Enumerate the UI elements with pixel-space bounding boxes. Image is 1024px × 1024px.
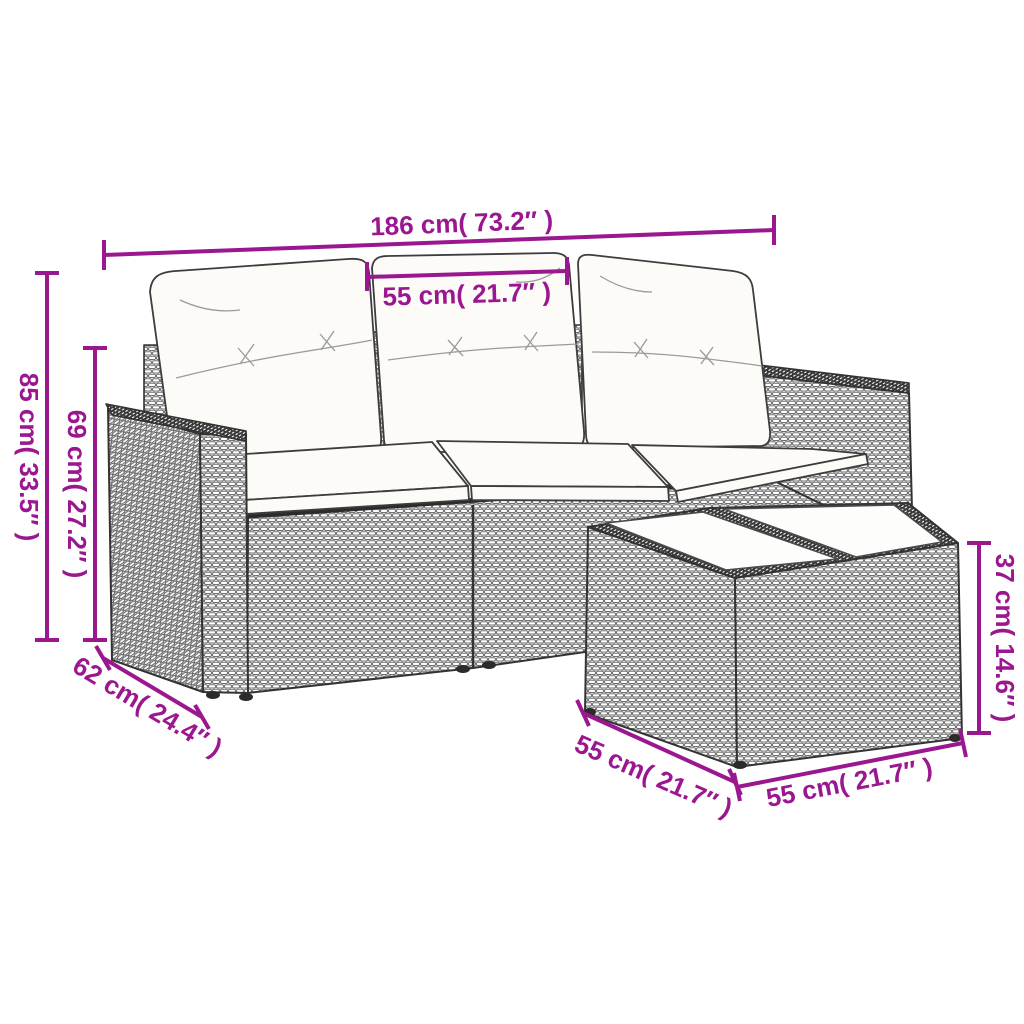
back-cushion-right: [578, 255, 770, 448]
table-front-right-face: [735, 543, 962, 767]
diagram-canvas: 186 cm( 73.2″ ) 55 cm( 21.7″ ) 85 cm( 33…: [0, 0, 1024, 1024]
label-frame-height: 69 cm( 27.2″ ): [62, 410, 92, 579]
label-total-height: 85 cm( 33.5″ ): [14, 373, 44, 542]
label-table-height: 37 cm( 14.6″ ): [990, 554, 1020, 723]
coffee-table-illustration: [584, 503, 962, 769]
product-dimension-diagram: 186 cm( 73.2″ ) 55 cm( 21.7″ ) 85 cm( 33…: [0, 0, 1024, 1024]
label-seat-width: 55 cm( 21.7″ ): [382, 276, 551, 311]
label-sofa-width: 186 cm( 73.2″ ): [370, 205, 554, 242]
left-armrest: [106, 404, 248, 693]
seat-cushion-middle-front: [471, 486, 669, 501]
dimension-table-height: [967, 543, 991, 733]
